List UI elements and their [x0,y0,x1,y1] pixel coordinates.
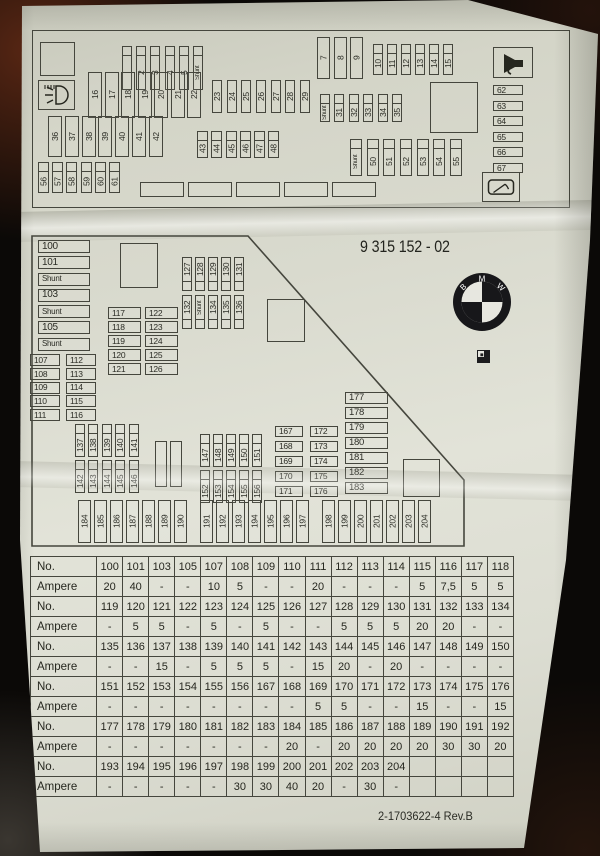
fuse-198: 198 [322,500,335,543]
table-cell: - [227,737,253,757]
table-row-no: No.1351361371381391401411421431441451461… [31,637,514,657]
fuse-label: 170 [276,472,302,481]
table-cell: 119 [97,597,123,617]
fuse-201: 201 [370,500,383,543]
fuse-label [171,442,181,486]
fuse-column-117-121: 117118119120121 [108,307,141,375]
fuse-label: 50 [368,149,378,175]
table-cell [461,777,487,797]
fuse-group-198-204: 198199200201202203204 [322,500,431,543]
table-cell: 103 [149,557,175,577]
fuse-41: 41 [132,116,146,157]
fuse-label: 45 [227,141,236,157]
table-cell: 175 [461,677,487,697]
fuse-103: 103 [38,289,90,302]
fuse-group-184-190: 184185186187188189190 [78,500,187,543]
fuse-label: 42 [150,117,162,156]
fuse-12: 12 [401,44,411,75]
table-cell: - [201,777,227,797]
table-cell: - [487,617,513,637]
fuse-group-7-9: 789 [317,37,363,79]
fuse-25: 25 [241,80,251,113]
fuse-label [156,442,166,486]
fuse-group-142-146: 142143144145146 [75,460,139,493]
fuse-shunt: Shunt [38,338,90,351]
table-cell: 169 [305,677,331,697]
table-cell: 112 [331,557,357,577]
fuse-table: No.1001011031051071081091101111121131141… [30,556,514,797]
top-blank-square [40,42,75,76]
fuse-label: 40 [116,117,128,156]
fuse-column-122-126: 122123124125126 [145,307,178,375]
fuse-124: 124 [145,335,178,347]
fuse-label: 198 [323,501,334,542]
fuse-174: 174 [310,456,338,467]
fuse-label: 169 [276,457,302,466]
fuse-label: 143 [89,470,97,492]
table-cell: 30 [357,777,383,797]
fuse-label: 8 [335,38,346,78]
table-cell: 195 [149,757,175,777]
fuse-150: 150 [239,434,249,467]
fuse-group-137-141: 137138139140141 [75,424,139,457]
fuse-group-56-61: 565758596061 [38,162,120,193]
fuse-label: 38 [83,117,95,156]
fuse-140: 140 [115,424,125,457]
table-cell: 15 [487,697,513,717]
table-cell: - [123,697,149,717]
fuse-label: 149 [227,444,235,466]
fuse-label: 177 [346,393,387,403]
fuse-label: 186 [111,501,122,542]
fuse-group-23-29: 23242526272829 [212,80,310,113]
table-cell: - [253,737,279,757]
table-row-ampere: Ampere--------55--15--15 [31,697,514,717]
fuse-group-16-22: 16171819202122 [88,72,201,118]
table-cell: 40 [123,577,149,597]
table-cell: 168 [279,677,305,697]
fuse-label: 53 [418,149,428,175]
fuse-label: 195 [265,501,276,542]
fuse-7: 7 [317,37,330,79]
table-cell: - [435,697,461,717]
table-cell: - [123,657,149,677]
fuse-label: 144 [103,470,111,492]
fuse-112: 112 [66,354,96,366]
table-cell: 139 [201,637,227,657]
fuse-27: 27 [271,80,281,113]
table-cell: - [149,577,175,597]
fuse-label: 61 [110,172,119,192]
fuse-label: 54 [434,149,444,175]
table-cell: 191 [461,717,487,737]
table-cell: 121 [149,597,175,617]
table-cell: 5 [201,657,227,677]
fuse-group-191-197: 191192193194195196197 [200,500,309,543]
fuse-193: 193 [232,500,245,543]
fuse-label: 113 [67,369,95,379]
table-cell: 20 [279,737,305,757]
table-cell: - [409,657,435,677]
fuse-label: 146 [130,470,138,492]
table-cell [435,777,461,797]
table-cell: 144 [331,637,357,657]
fuse-label: 148 [214,444,222,466]
fuse-28: 28 [285,80,295,113]
fuse-label: 101 [39,257,89,268]
table-cell: 184 [279,717,305,737]
table-cell: 5 [305,697,331,717]
fuse-36: 36 [48,116,62,157]
table-cell: 114 [383,557,409,577]
fuse-column-172-176: 172173174175176 [310,426,338,497]
table-cell: 5 [227,657,253,677]
fuse-column-177-183: 177178179180181182183 [345,392,388,494]
table-cell: 15 [409,697,435,717]
fuse-label: 107 [31,355,59,365]
fuse-139: 139 [102,424,112,457]
table-cell: 178 [123,717,149,737]
table-cell: - [279,617,305,637]
fuse-blank [170,441,182,487]
fuse-144: 144 [102,460,112,493]
fuse-26: 26 [256,80,266,113]
fuse-199: 199 [338,500,351,543]
table-cell: - [97,697,123,717]
table-cell: 125 [253,597,279,617]
horn-box [493,47,533,78]
fuse-label: 62 [494,86,522,95]
table-cell: - [149,777,175,797]
row-label-cell: Ampere [31,577,97,597]
table-cell: 135 [97,637,123,657]
fuse-label: 181 [346,453,387,463]
table-cell: 5 [487,577,513,597]
fuse-64: 64 [493,116,523,126]
table-cell: 196 [175,757,201,777]
table-cell [435,757,461,777]
table-cell: 146 [383,637,409,657]
fuse-label [237,183,279,196]
table-cell: 137 [149,637,175,657]
fuse-181: 181 [345,452,388,464]
fuse-151: 151 [252,434,262,467]
fuse-11: 11 [387,44,397,75]
fuse-194: 194 [248,500,261,543]
fuse-blank [236,182,280,197]
fuse-label: 196 [281,501,292,542]
table-cell: 134 [487,597,513,617]
fuse-179: 179 [345,422,388,434]
fuse-57: 57 [52,162,63,193]
fuse-card: 2345Shunt 16171819202122 23242526272829 … [0,0,600,856]
fuse-group-shunt-50-55: Shunt505152535455 [350,139,462,176]
fuse-63: 63 [493,101,523,111]
fuse-145: 145 [115,460,125,493]
fuse-label: 147 [201,444,209,466]
table-cell: 155 [201,677,227,697]
fuse-label: Shunt [39,274,89,285]
fuse-101: 101 [38,256,90,269]
fuse-128: 128 [195,257,205,291]
table-cell: 203 [357,757,383,777]
table-cell: 133 [461,597,487,617]
fuse-label: 60 [96,172,105,192]
fuse-label: Shunt [39,339,89,350]
fuse-115: 115 [66,395,96,407]
fuse-177: 177 [345,392,388,404]
table-row-no: No.193194195196197198199200201202203204 [31,757,514,777]
fuse-label: 185 [95,501,106,542]
table-cell: - [279,657,305,677]
fuse-label: 63 [494,102,522,111]
fuse-label: Shunt [39,306,89,317]
table-cell: 20 [357,737,383,757]
table-cell: 5 [357,617,383,637]
fuse-185: 185 [94,500,107,543]
fuse-label: 57 [53,172,62,192]
fuse-42: 42 [149,116,163,157]
fuse-56: 56 [38,162,49,193]
fuse-184: 184 [78,500,91,543]
fuse-label: 118 [109,322,140,332]
fuse-label: 39 [99,117,111,156]
fuse-33: 33 [363,94,373,122]
table-cell: 151 [97,677,123,697]
table-cell: 181 [201,717,227,737]
fuse-154: 154 [226,470,236,503]
fuse-label: 187 [127,501,138,542]
table-cell: 5 [331,617,357,637]
table-row-no: No.1191201211221231241251261271281291301… [31,597,514,617]
fuse-label: 51 [384,149,394,175]
fuse-shunt: Shunt [195,295,205,329]
table-cell: 127 [305,597,331,617]
table-cell: 187 [357,717,383,737]
fuse-119: 119 [108,335,141,347]
table-cell [487,777,513,797]
table-cell: - [305,737,331,757]
table-cell: - [201,737,227,757]
fuse-10: 10 [373,44,383,75]
fuse-label: 172 [311,427,337,436]
table-cell [461,757,487,777]
fuse-group-10-15: 101112131415 [373,44,453,75]
table-cell: 105 [175,557,201,577]
row-label-cell: Ampere [31,617,97,637]
fuse-label: 25 [242,81,250,112]
fuse-label: 137 [76,434,84,456]
fuse-189: 189 [158,500,171,543]
table-cell: 107 [201,557,227,577]
table-cell: 131 [409,597,435,617]
fuse-135: 135 [221,295,231,329]
fuse-label: 201 [371,501,382,542]
table-cell: 15 [305,657,331,677]
fuse-134: 134 [208,295,218,329]
table-cell: 142 [279,637,305,657]
horn-icon [498,51,528,75]
table-cell: 173 [409,677,435,697]
fuse-118: 118 [108,321,141,333]
fuse-67: 67 [493,163,523,173]
fuse-label: 105 [39,322,89,333]
table-cell: 30 [461,737,487,757]
table-cell: 171 [357,677,383,697]
table-cell: 193 [97,757,123,777]
table-cell: - [97,737,123,757]
fuse-132: 132 [182,295,192,329]
table-cell: 185 [305,717,331,737]
fuse-label: 48 [269,141,278,157]
table-cell: 100 [97,557,123,577]
table-row-ampere: Ampere-------20-20202020303020 [31,737,514,757]
fuse-label: 67 [494,164,522,173]
fuse-8: 8 [334,37,347,79]
fuse-19: 19 [138,72,152,118]
table-cell: 40 [279,777,305,797]
table-cell: 109 [253,557,279,577]
fuse-143: 143 [88,460,98,493]
fuse-label: 203 [403,501,414,542]
table-cell: 141 [253,637,279,657]
table-cell: 194 [123,757,149,777]
fuse-176: 176 [310,486,338,497]
fuse-197: 197 [296,500,309,543]
fuse-label: 26 [257,81,265,112]
fuse-label: 119 [109,336,140,346]
fuse-label: 191 [201,501,212,542]
fuse-48: 48 [268,131,279,158]
fuse-label: 156 [253,480,261,502]
table-cell: - [97,777,123,797]
row-label-cell: No. [31,597,97,617]
fuse-label: 19 [139,73,151,117]
table-cell: - [383,777,409,797]
fuse-blank [332,182,376,197]
table-cell: - [461,697,487,717]
fuse-label: 151 [253,444,261,466]
fuse-column-112-116: 112113114115116 [66,354,96,421]
table-cell: - [487,657,513,677]
table-row-ampere: Ampere-----30304020-30- [31,777,514,797]
fuse-label: 43 [198,141,207,157]
fuse-label: 27 [272,81,280,112]
table-cell: 129 [357,597,383,617]
fuse-label: 153 [214,480,222,502]
print-registration-mark [477,350,490,363]
fuse-label: 202 [387,501,398,542]
fuse-group-36-42: 36373839404142 [48,116,163,157]
fuse-182: 182 [345,467,388,479]
fuse-label: 127 [183,258,191,281]
fuse-label: 46 [241,141,250,157]
table-cell: 10 [201,577,227,597]
fuse-label: 139 [103,434,111,456]
fuse-156: 156 [252,470,262,503]
table-cell: 192 [487,717,513,737]
table-cell: 20 [97,577,123,597]
row-label-cell: Ampere [31,777,97,797]
table-cell: 190 [435,717,461,737]
table-cell: - [149,697,175,717]
fuse-label: 33 [364,104,372,121]
fuse-label: 23 [213,81,221,112]
table-cell: 5 [331,697,357,717]
fuse-label: 20 [155,73,167,117]
table-cell: 115 [409,557,435,577]
fuse-label: Shunt [321,104,329,121]
table-cell: 143 [305,637,331,657]
table-cell: 140 [227,637,253,657]
fuse-label: 66 [494,148,522,157]
fuse-129: 129 [208,257,218,291]
fuse-label: 174 [311,457,337,466]
fuse-191: 191 [200,500,213,543]
fuse-label [141,183,183,196]
fuse-label: 120 [109,350,140,360]
fuse-188: 188 [142,500,155,543]
fuse-38: 38 [82,116,96,157]
fuse-61: 61 [109,162,120,193]
row-label-cell: No. [31,677,97,697]
fuse-label: 31 [335,104,343,121]
fuse-24: 24 [227,80,237,113]
document-number: 2-1703622-4 Rev.B [378,809,473,823]
fuse-62: 62 [493,85,523,95]
table-cell: 177 [97,717,123,737]
fuse-shunt: Shunt [320,94,330,122]
fuse-label: 15 [444,54,452,74]
fuse-table-body: No.1001011031051071081091101111121131141… [31,557,514,797]
fuse-label: 29 [301,81,309,112]
table-cell: 20 [487,737,513,757]
table-cell: 148 [435,637,461,657]
fuse-45: 45 [226,131,237,158]
fuse-label: 7 [318,38,329,78]
table-cell: 145 [357,637,383,657]
fuse-47: 47 [254,131,265,158]
table-cell: 188 [383,717,409,737]
fuse-23: 23 [212,80,222,113]
row-label-cell: Ampere [31,737,97,757]
table-cell: - [175,577,201,597]
fuse-label: 142 [76,470,84,492]
fuse-label: 114 [67,383,95,393]
fuse-label: 64 [494,117,522,126]
fuse-blank [284,182,328,197]
table-cell: 132 [435,597,461,617]
fuse-label: 140 [116,434,124,456]
fuse-122: 122 [145,307,178,319]
fuse-column-100-shunt: 100101Shunt103Shunt105Shunt [38,240,90,351]
fuse-120: 120 [108,349,141,361]
fuse-123: 123 [145,321,178,333]
table-cell: 15 [149,657,175,677]
fuse-label: 135 [222,296,230,319]
fuse-label: 180 [346,438,387,448]
table-cell: 122 [175,597,201,617]
logo-letter-m: M [479,275,486,284]
table-cell: 5 [227,577,253,597]
table-cell: 5 [123,617,149,637]
table-cell: 202 [331,757,357,777]
fuse-label: 145 [116,470,124,492]
table-cell: 201 [305,757,331,777]
fuse-label: 59 [82,172,91,192]
fuse-15: 15 [443,44,453,75]
fuse-126: 126 [145,363,178,375]
